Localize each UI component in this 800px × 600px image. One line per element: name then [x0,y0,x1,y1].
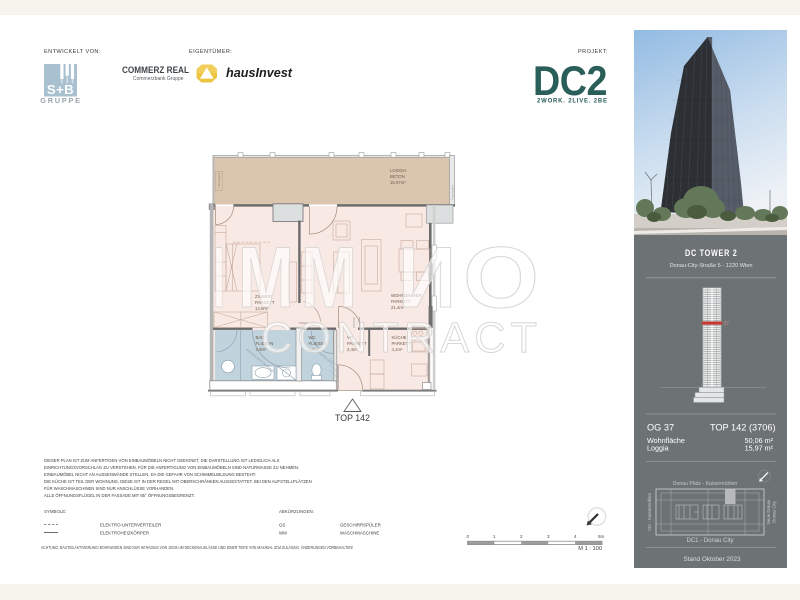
svg-text:DC1 - Donau City: DC1 - Donau City [686,538,733,544]
svg-text:VIC - Kaisermühlen: VIC - Kaisermühlen [647,492,652,531]
svg-text:hausInvest: hausInvest [226,65,293,80]
svg-text:ELEKTROHEIZKÖRPER: ELEKTROHEIZKÖRPER [100,531,149,536]
svg-text:O: O [463,230,539,326]
svg-text:ACHTUNG: BAUTEILAKTIVIERUNG! B: ACHTUNG: BAUTEILAKTIVIERUNG! BOHRUNGEN S… [41,545,353,550]
svg-text:I: I [213,230,225,326]
svg-text:S+B: S+B [47,82,74,97]
svg-text:BETON: BETON [390,174,405,179]
svg-text:Donau-City-Straße 5 - 1220 Wie: Donau-City-Straße 5 - 1220 Wien [669,263,752,269]
svg-text:Trennwand: Trennwand [217,173,221,188]
svg-text:TOP 142: TOP 142 [335,413,370,423]
svg-text:Commerzbank Gruppe: Commerzbank Gruppe [133,76,184,82]
svg-text:GS: GS [279,523,285,528]
svg-text:OG 37: OG 37 [647,423,674,433]
svg-text:COMMERZ REAL: COMMERZ REAL [122,65,190,75]
svg-text:DIESER PLAN IST ZUM ANFERTIGEN: DIESER PLAN IST ZUM ANFERTIGEN VON EINBA… [44,458,280,463]
svg-text:EINBAUMÖBEL NICHT AN AUSSENWÄN: EINBAUMÖBEL NICHT AN AUSSENWÄNDE STELLEN… [44,472,256,477]
svg-text:15,97m²: 15,97m² [390,180,406,185]
svg-text:15,97 m²: 15,97 m² [745,444,774,453]
svg-text:Loggia: Loggia [647,444,669,453]
svg-text:3: 3 [547,534,550,539]
svg-text:ALLE ÖFFNUNGSFLÜGEL IN DER FAS: ALLE ÖFFNUNGSFLÜGEL IN DER FASSADE MIT 8… [44,493,195,498]
svg-text:ABKÜRZUNGEN:: ABKÜRZUNGEN: [279,509,314,514]
svg-text:EIGENTÜMER:: EIGENTÜMER: [189,48,232,55]
svg-text:N: N [398,230,456,326]
svg-text:0: 0 [467,534,470,539]
svg-text:PROJEKT:: PROJEKT: [578,49,608,55]
svg-text:DC TOWER 2: DC TOWER 2 [685,248,738,258]
svg-text:Donau City: Donau City [772,500,777,523]
svg-text:ENTWICKELT VON:: ENTWICKELT VON: [44,49,101,55]
svg-text:TOP 142 (3706): TOP 142 (3706) [710,423,776,433]
svg-text:GESCHIRRSPÜLER: GESCHIRRSPÜLER [340,523,381,528]
svg-text:M: M [238,230,294,326]
svg-text:Donau Platz - Kaisermühlen: Donau Platz - Kaisermühlen [673,481,738,487]
svg-text:37: 37 [724,321,730,327]
svg-text:DC2: DC2 [533,57,607,104]
svg-text:Trennwand: Trennwand [451,185,455,200]
svg-text:4: 4 [574,534,577,539]
svg-text:WASCHMASCHINE: WASCHMASCHINE [340,531,379,536]
svg-text:Neue Donau: Neue Donau [766,499,771,524]
svg-text:FÜR WASCHMASCHINEN SIND NUR AN: FÜR WASCHMASCHINEN SIND NUR ANSCHLÜSSE V… [44,486,174,491]
svg-text:2: 2 [520,534,523,539]
svg-text:GRUPPE: GRUPPE [40,96,81,105]
svg-text:Stand Oktober 2023: Stand Oktober 2023 [683,556,741,563]
svg-text:ELEKTRO-UNTERVERTEILER: ELEKTRO-UNTERVERTEILER [100,523,161,528]
svg-text:5m: 5m [598,534,605,539]
svg-text:DIE KÜCHE IST TEIL DER WOHNUNG: DIE KÜCHE IST TEIL DER WOHNUNG, DIESE IS… [44,479,312,484]
svg-text:1: 1 [493,534,496,539]
svg-text:M 1 : 100: M 1 : 100 [578,546,602,552]
svg-text:EINRICHTUNGSVORSCHLAG ZU VERST: EINRICHTUNGSVORSCHLAG ZU VERSTEHEN. FÜR … [44,465,299,470]
svg-text:SYMBOLE:: SYMBOLE: [44,509,66,514]
svg-text:2WORK. 2LIVE. 2BE: 2WORK. 2LIVE. 2BE [537,99,607,105]
svg-text:M: M [301,230,357,326]
svg-text:WM: WM [279,531,287,536]
svg-text:LOGGIA: LOGGIA [390,168,407,173]
